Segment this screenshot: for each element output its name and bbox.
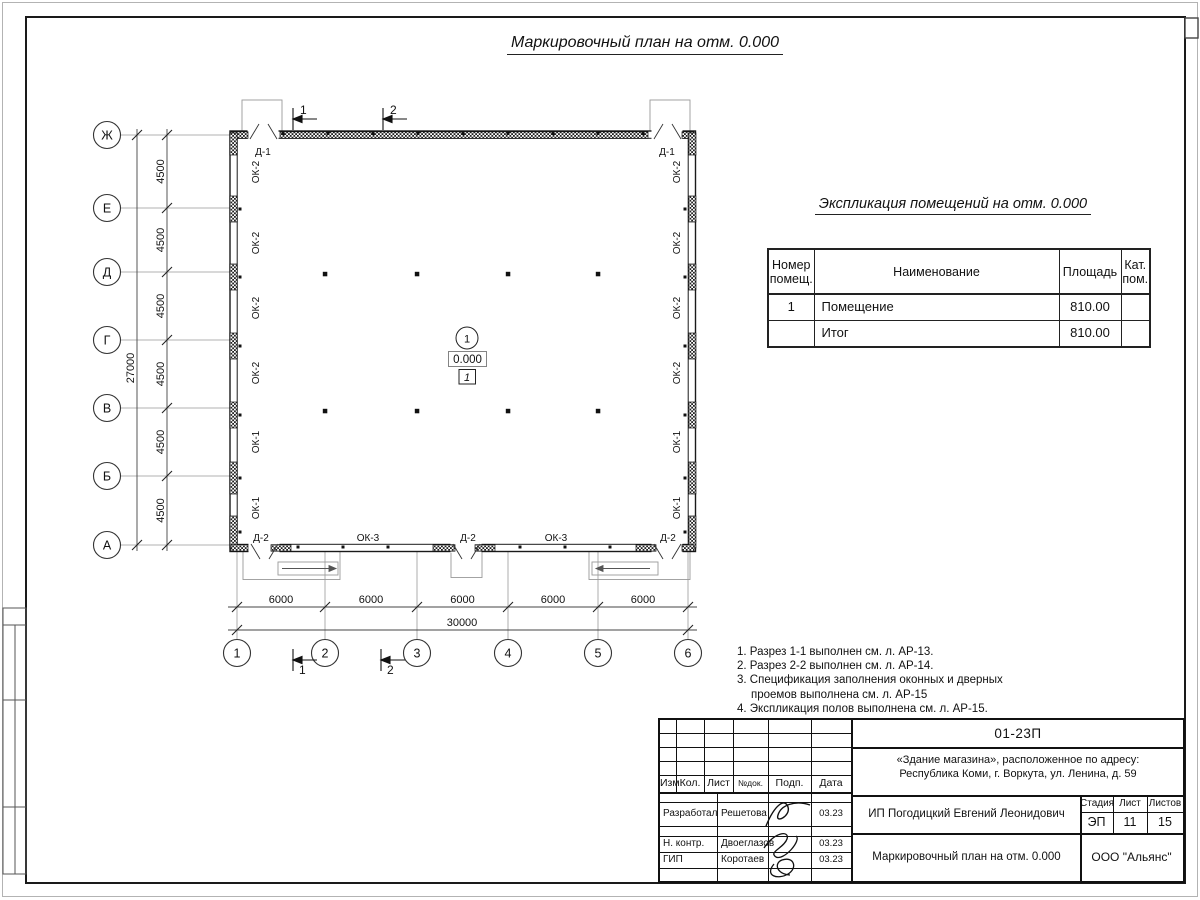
dim-label: 4500 (155, 294, 167, 318)
ramp-arrows (282, 566, 650, 572)
section-mark-number: 2 (387, 663, 394, 677)
row-axis-label: Ж (101, 129, 113, 143)
section-mark-number: 1 (299, 663, 306, 677)
room-number: 1 (464, 334, 470, 346)
spec-col-header: Наименование (814, 249, 1059, 294)
stamp-sheets-label: Листов (1147, 795, 1183, 812)
table-row: Итог 810.00 (768, 321, 1150, 348)
door-tag: Д-2 (460, 533, 476, 544)
stamp-col-izm: Изм. (660, 775, 676, 792)
left-approval-strip (3, 608, 26, 874)
row-axis-label: А (103, 539, 112, 553)
door-tag: Д-2 (660, 533, 676, 544)
room-area-cell: 810.00 (1059, 294, 1121, 321)
window-tag: ОК-2 (251, 231, 262, 254)
stamp-col-podp: Подп. (768, 775, 811, 792)
window-tag: ОК-1 (251, 496, 262, 519)
dim-label: 6000 (269, 594, 293, 606)
note-line: 2. Разрез 2-2 выполнен см. л. АР-14. (737, 659, 1077, 673)
room-num-cell (768, 321, 814, 348)
door-tag: Д-1 (255, 147, 271, 158)
stamp-company: ООО "Альянс" (1080, 833, 1183, 881)
room-area-cell: 810.00 (1059, 321, 1121, 348)
section-mark-number: 2 (390, 103, 397, 117)
stamp-object-line2: Республика Коми, г. Воркута, ул. Ленина,… (853, 768, 1183, 782)
stamp-stage-label: Стадия (1080, 795, 1113, 812)
window-tag: ОК-1 (251, 430, 262, 453)
dim-label: 4500 (155, 228, 167, 252)
room-cat-cell (1121, 294, 1150, 321)
room-name-cell: Итог (814, 321, 1059, 348)
row-axis-label: Г (104, 334, 111, 348)
dim-label: 4500 (155, 159, 167, 183)
window-tag: ОК-2 (672, 361, 683, 384)
window-tag: ОК-3 (357, 533, 380, 544)
dim-total-label: 30000 (447, 617, 478, 629)
stamp-drawing-name: Маркировочный план на отм. 0.000 (853, 833, 1080, 881)
spec-header-row: Номер помещ. Наименование Площадь Кат. п… (768, 249, 1150, 294)
door-tag: Д-1 (659, 147, 675, 158)
spec-title: Экспликация помещений на отм. 0.000 (770, 195, 1136, 215)
table-row: 1 Помещение 810.00 (768, 294, 1150, 321)
note-line: проемов выполнена см. л. АР-15 (737, 688, 1077, 702)
stamp-col-list: Лист (704, 775, 733, 792)
spec-col-header: Кат. пом. (1121, 249, 1150, 294)
col-axis-label: 3 (414, 647, 421, 661)
dim-label: 6000 (450, 594, 474, 606)
dim-label: 4500 (155, 430, 167, 454)
spec-col-header: Площадь (1059, 249, 1121, 294)
section-mark-number: 1 (300, 103, 307, 117)
stamp-name: Решетова (721, 802, 767, 826)
stamp-object-line1: «Здание магазина», расположенное по адре… (853, 754, 1183, 768)
col-axis-label: 2 (322, 647, 329, 661)
row-axis-label: В (103, 402, 111, 416)
row-axis-label: Д (103, 266, 112, 280)
window-tag: ОК-1 (672, 430, 683, 453)
col-axis-label: 6 (685, 647, 692, 661)
col-axis-label: 1 (234, 647, 241, 661)
main-title-text: Маркировочный план на отм. 0.000 (507, 34, 783, 55)
room-num-cell: 1 (768, 294, 814, 321)
stamp-sheet-value: 11 (1113, 812, 1147, 833)
dim-label: 6000 (541, 594, 565, 606)
floor-type-mark: 1 (464, 372, 470, 384)
note-line: 3. Спецификация заполнения оконных и две… (737, 673, 1077, 687)
spec-col-header: Номер помещ. (768, 249, 814, 294)
window-tag: ОК-2 (672, 160, 683, 183)
dim-label: 4500 (155, 498, 167, 522)
axis-bubbles (94, 122, 702, 667)
dim-label: 4500 (155, 362, 167, 386)
elevation-mark: 0.000 (453, 354, 482, 366)
window-tag: ОК-2 (251, 160, 262, 183)
room-spec-table: Номер помещ. Наименование Площадь Кат. п… (767, 248, 1151, 348)
row-axis-label: Е (103, 202, 111, 216)
stamp-col-kol: Кол. (676, 775, 704, 792)
stamp-date: 03.23 (811, 802, 851, 826)
window-tag: ОК-2 (251, 361, 262, 384)
window-tag: ОК-3 (545, 533, 568, 544)
signature (760, 830, 818, 880)
stamp-stage-value: ЭП (1080, 812, 1113, 833)
title-block: Изм. Кол. Лист №док. Подп. Дата Разработ… (658, 718, 1185, 883)
dimension-ticks (132, 130, 693, 635)
col-axis-label: 4 (505, 647, 512, 661)
dim-total-label: 27000 (125, 353, 137, 384)
signature (763, 796, 815, 830)
col-axis-label: 5 (595, 647, 602, 661)
spec-title-text: Экспликация помещений на отм. 0.000 (815, 196, 1091, 215)
stamp-role: Н. контр. (663, 836, 717, 852)
window-tag: ОК-2 (672, 231, 683, 254)
window-tag: ОК-2 (251, 296, 262, 319)
axis-lines (121, 135, 688, 639)
section-marks (293, 108, 407, 671)
stamp-sheet-label: Лист (1113, 795, 1147, 812)
dim-label: 6000 (631, 594, 655, 606)
stamp-role: Разработал (663, 802, 717, 826)
notes: 1. Разрез 1-1 выполнен см. л. АР-13. 2. … (737, 645, 1077, 716)
room-name-cell: Помещение (814, 294, 1059, 321)
note-line: 1. Разрез 1-1 выполнен см. л. АР-13. (737, 645, 1077, 659)
window-tag: ОК-2 (672, 296, 683, 319)
room-tag: 1 0.000 1 (449, 327, 487, 384)
room-cat-cell (1121, 321, 1150, 348)
note-line: 4. Экспликация полов выполнена см. л. АР… (737, 702, 1077, 716)
stamp-col-dok: №док. (733, 775, 768, 792)
stamp-client: ИП Погодицкий Евгений Леонидович (853, 795, 1080, 833)
stamp-role: ГИП (663, 852, 717, 868)
row-axis-label: Б (103, 470, 111, 484)
dim-label: 6000 (359, 594, 383, 606)
window-tag: ОК-1 (672, 496, 683, 519)
main-title: Маркировочный план на отм. 0.000 (460, 34, 830, 55)
stamp-doc-number: 01-23П (853, 720, 1183, 747)
stamp-sheets-value: 15 (1147, 812, 1183, 833)
stamp-col-data: Дата (811, 775, 851, 792)
door-tag: Д-2 (253, 533, 269, 544)
drawing-sheet: Ж Е Д Г В Б А 1 2 3 4 5 6 4500 4500 4500… (0, 0, 1200, 900)
